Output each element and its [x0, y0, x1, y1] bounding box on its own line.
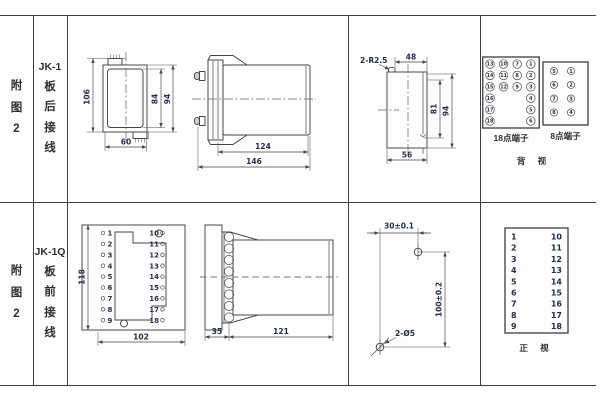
- label-rear-view: 背 视: [517, 156, 551, 166]
- terminal-number: 14: [149, 273, 159, 281]
- dim-94: 94: [442, 106, 451, 116]
- table-number: 5: [511, 277, 517, 286]
- dim-94: 94: [163, 94, 172, 104]
- figure-label-top: 附 图 2: [0, 15, 33, 202]
- terminal-number: 6: [552, 83, 556, 89]
- terminal-stud: [224, 278, 233, 287]
- terminal-number: 13: [149, 262, 159, 270]
- table-number: 1: [511, 233, 517, 242]
- terminal-number: 5: [552, 69, 556, 75]
- terminal-stud: [224, 313, 233, 322]
- jk1q-drilling-plan: 30±0.1 100±0.2 2-Ø5: [352, 215, 476, 365]
- terminal-stud: [224, 232, 233, 241]
- model-name: JK-1Q: [35, 247, 66, 258]
- terminal-stud: [224, 244, 233, 253]
- terminal-number: 14: [487, 73, 494, 79]
- table-number: 9: [511, 322, 517, 331]
- terminal-grid-8: 51627384: [550, 67, 574, 116]
- jk1q-side-view: 35 121: [200, 215, 340, 355]
- jk1q-front-view: 123456789 101112131415161718 118 102: [78, 215, 198, 355]
- terminal-number: 3: [529, 85, 532, 91]
- terminal-dot: [101, 286, 105, 290]
- jk1-panel-cutout: 48 2-R2.5 81 94 56: [352, 48, 476, 172]
- screw-notch-bottom: [421, 134, 426, 136]
- figure-char: 附: [11, 81, 23, 93]
- table-number: 10: [551, 233, 563, 242]
- terminal-stud: [224, 255, 233, 264]
- table-number: 18: [551, 322, 563, 331]
- rear-view-terminals: 131071141182151293164175186 51627384 18点…: [482, 50, 594, 172]
- top-mounting-tab: [108, 59, 122, 66]
- figure-char: 2: [13, 309, 19, 321]
- case-body: [223, 65, 310, 135]
- terminal-number: 18: [487, 119, 494, 125]
- terminal-number: 7: [516, 62, 519, 68]
- table-row-divider: [0, 202, 596, 203]
- table-number: 16: [551, 300, 563, 309]
- terminal-number: 9: [108, 317, 113, 325]
- terminal-number: 17: [487, 107, 494, 113]
- terminal-dot: [161, 297, 165, 301]
- terminal-number: 15: [149, 284, 159, 292]
- terminal-number: 12: [149, 251, 159, 259]
- table-col-divider-2: [67, 15, 68, 385]
- table-border-bottom: [0, 385, 596, 386]
- terminal-stud: [224, 301, 233, 310]
- base-plate-outline: [82, 225, 185, 330]
- table-number: 13: [551, 266, 562, 275]
- bottom-mounting-tab: [133, 132, 148, 139]
- figure-char: 图: [11, 288, 23, 300]
- figure-char: 图: [11, 103, 23, 115]
- terminal-number: 18: [149, 317, 159, 325]
- screw-notch-top: [389, 67, 396, 72]
- terminal-dot: [101, 297, 105, 301]
- terminal-number: 4: [569, 110, 573, 116]
- table-number: 4: [511, 266, 517, 275]
- bottom-tab-threads: [136, 139, 145, 143]
- terminal-number: 4: [529, 96, 533, 102]
- top-tab-threads: [111, 55, 120, 59]
- wiring-char: 线: [44, 328, 56, 340]
- top-taper: [222, 232, 258, 240]
- terminal-grid-18: 131071141182151293164175186: [486, 60, 535, 126]
- terminal-numbers-right: 101112131415161718: [551, 233, 563, 332]
- figure-char: 附: [11, 266, 23, 278]
- terminal-number: 3: [569, 96, 573, 102]
- wiring-char: 后: [44, 102, 56, 114]
- dim-124: 124: [255, 142, 271, 151]
- wiring-char: 线: [44, 143, 56, 155]
- dim-radius: 2-R2.5: [360, 56, 387, 65]
- dim-56: 56: [402, 151, 412, 160]
- top-stud: [195, 72, 206, 81]
- wiring-char: 板: [44, 82, 56, 94]
- dim-48: 48: [406, 53, 416, 62]
- terminal-number: 16: [149, 295, 159, 303]
- terminal-number: 8: [108, 306, 113, 314]
- wiring-char: 板: [44, 267, 56, 279]
- label-front-view: 正 视: [519, 343, 553, 353]
- terminal-number: 8: [516, 73, 520, 79]
- terminal-number: 6: [529, 119, 533, 125]
- front-terminals-right: 101112131415161718: [149, 230, 164, 325]
- terminal-numbers-left: 123456789: [511, 233, 517, 332]
- terminal-dot: [101, 308, 105, 312]
- table-number: 8: [511, 311, 517, 320]
- case-outline: [103, 65, 147, 132]
- wiring-char: 前: [44, 287, 56, 299]
- label-8-point: 8点端子: [550, 131, 581, 141]
- terminal-number: 1: [108, 230, 113, 238]
- table-col-divider-3: [348, 15, 349, 385]
- model-label-bottom: JK-1Q 板 前 接 线: [33, 202, 67, 385]
- terminal-dot: [101, 275, 105, 279]
- dim-100: 100±0.2: [435, 282, 444, 317]
- front-terminals-left: 123456789: [101, 230, 112, 325]
- terminal-number: 1: [529, 62, 532, 68]
- front-view-terminal-table: 123456789 101112131415161718 正 视: [495, 220, 595, 365]
- dim-121: 121: [273, 327, 289, 336]
- terminal-number: 10: [500, 62, 507, 68]
- terminal-number: 11: [500, 73, 507, 79]
- terminal-number: 1: [569, 69, 573, 75]
- terminal-number: 2: [108, 241, 113, 249]
- table-number: 11: [551, 244, 563, 253]
- dim-81: 81: [430, 104, 439, 114]
- label-18-point: 18点端子: [494, 133, 529, 143]
- table-number: 12: [551, 255, 562, 264]
- terminal-number: 7: [108, 295, 113, 303]
- bottom-stud: [195, 117, 206, 126]
- terminal-dot: [101, 253, 105, 257]
- terminal-number: 15: [487, 85, 494, 91]
- jk1-case-front-view: 106 84 94 60: [80, 48, 184, 160]
- terminal-number: 5: [529, 107, 532, 113]
- terminal-dot: [101, 318, 105, 322]
- terminal-number: 12: [500, 85, 507, 91]
- terminal-number: 7: [552, 96, 556, 102]
- dim-102: 102: [133, 333, 149, 342]
- dim-106: 106: [83, 89, 92, 105]
- terminal-number: 2: [569, 83, 573, 89]
- mounting-flange: [208, 60, 223, 140]
- terminal-dot: [161, 253, 165, 257]
- model-label-top: JK-1 板 后 接 线: [33, 15, 67, 202]
- terminal-dot: [161, 308, 165, 312]
- terminal-number: 10: [149, 230, 159, 238]
- table-number: 17: [551, 311, 562, 320]
- terminal-number: 8: [552, 110, 556, 116]
- terminal-number: 2: [529, 73, 532, 79]
- terminal-dot: [161, 318, 165, 322]
- dim-30: 30±0.1: [384, 222, 414, 231]
- dim-84: 84: [151, 94, 160, 104]
- wiring-char: 接: [44, 123, 56, 135]
- terminal-number: 6: [108, 284, 113, 292]
- figure-char: 2: [13, 124, 19, 136]
- table-number: 2: [511, 244, 517, 253]
- table-number: 15: [551, 289, 563, 298]
- terminal-number: 16: [487, 96, 494, 102]
- terminal-number: 11: [149, 241, 159, 249]
- terminal-number: 13: [487, 62, 494, 68]
- figure-label-bottom: 附 图 2: [0, 202, 33, 385]
- dim-146: 146: [246, 157, 262, 166]
- dim-35: 35: [212, 327, 222, 336]
- terminal-dot: [161, 286, 165, 290]
- dim-60: 60: [121, 138, 131, 147]
- terminal-block-8: [543, 62, 588, 125]
- terminal-number: 4: [108, 262, 113, 270]
- table-col-divider-4: [480, 15, 481, 385]
- terminal-stud: [224, 267, 233, 276]
- jk1-side-view: 124 146: [192, 48, 318, 172]
- mounting-hole-bottom: [121, 320, 128, 327]
- table-number: 7: [511, 300, 517, 309]
- table-number: 14: [551, 277, 563, 286]
- terminal-stud: [224, 290, 233, 299]
- table-border-top: [0, 15, 596, 16]
- terminal-dot: [161, 264, 165, 268]
- terminal-dot: [161, 275, 165, 279]
- table-number: 6: [511, 289, 517, 298]
- dim-hole-note: 2-Ø5: [395, 329, 415, 338]
- terminal-number: 9: [516, 85, 520, 91]
- table-number: 3: [511, 255, 517, 264]
- terminal-dot: [101, 264, 105, 268]
- cutout-outline: [387, 72, 427, 148]
- terminal-dot: [101, 231, 105, 235]
- dim-118: 118: [78, 269, 87, 285]
- model-name: JK-1: [39, 62, 62, 73]
- terminal-number: 3: [108, 251, 113, 259]
- terminal-dot: [101, 242, 105, 246]
- case-cover: [108, 69, 144, 128]
- terminal-number: 5: [108, 273, 113, 281]
- wiring-char: 接: [44, 308, 56, 320]
- terminal-number: 17: [149, 306, 159, 314]
- figure-2-sheet: 附 图 2 JK-1 板 后 接 线 附 图 2 JK-1Q 板 前 接 线: [0, 0, 600, 400]
